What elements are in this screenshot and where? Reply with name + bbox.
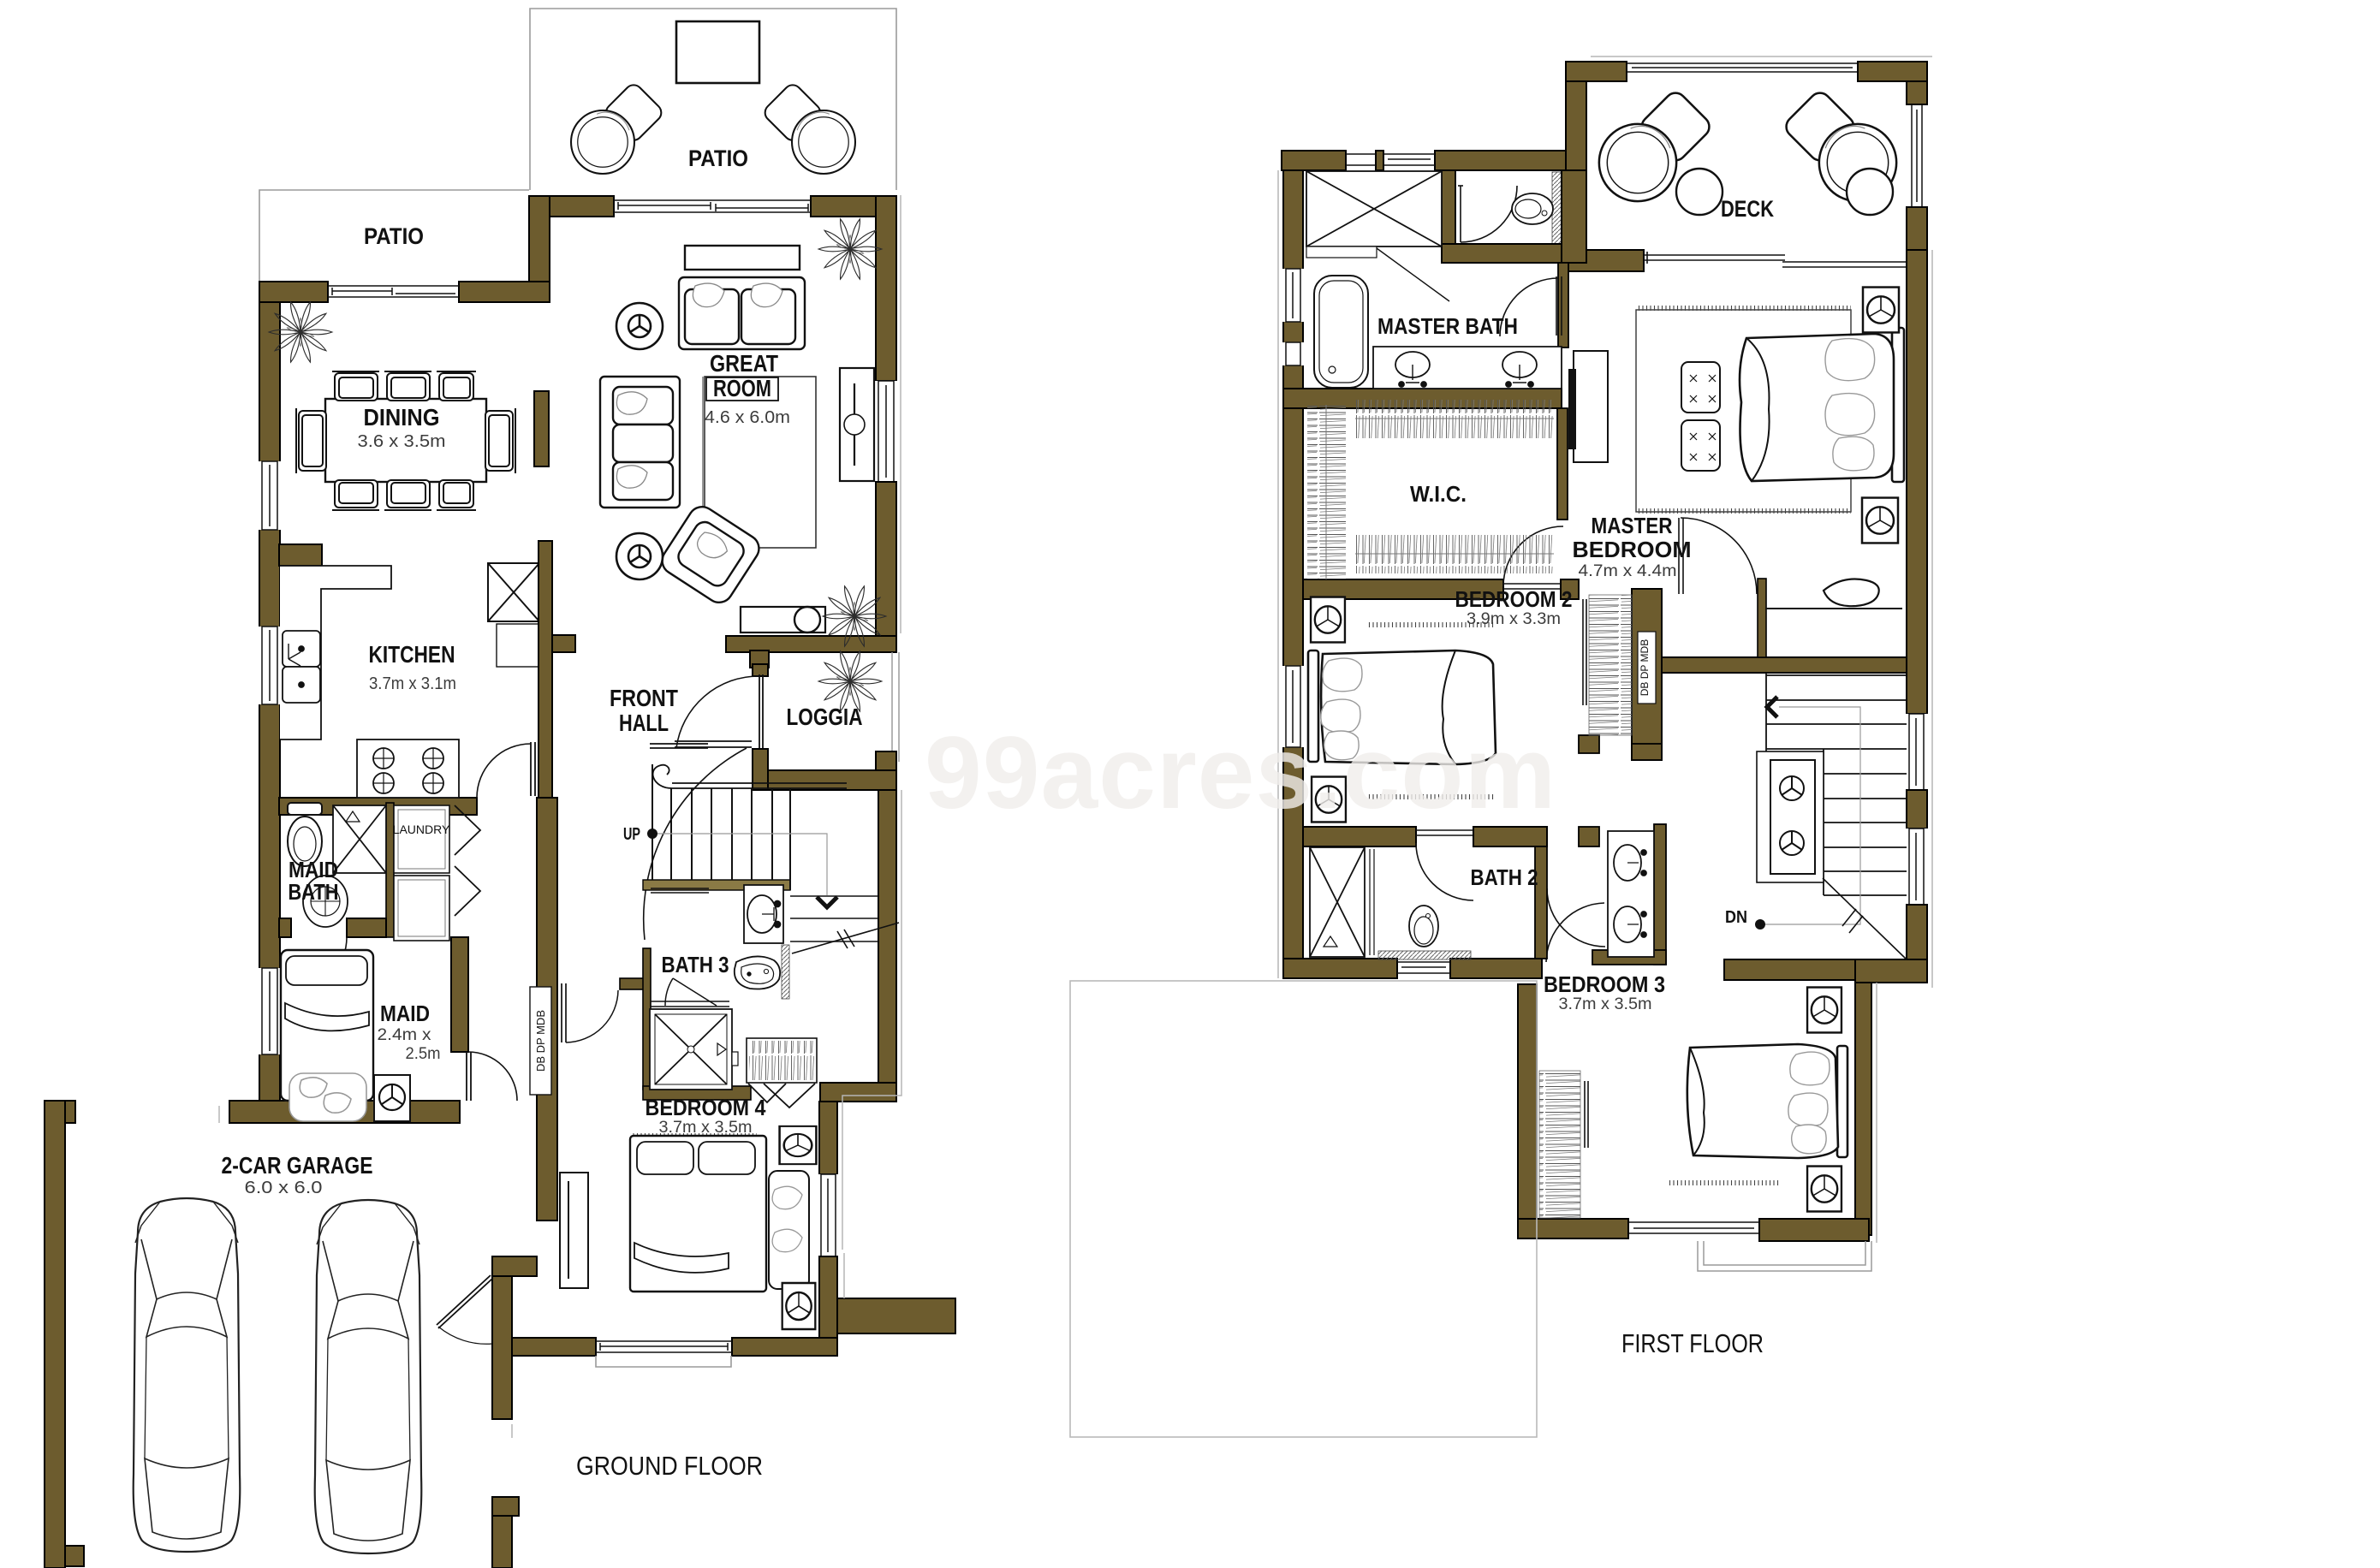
svg-text:ROOM: ROOM <box>713 375 771 401</box>
svg-text:4.7m x 4.4m: 4.7m x 4.4m <box>1579 562 1677 580</box>
svg-text:FIRST FLOOR: FIRST FLOOR <box>1621 1328 1764 1358</box>
svg-text:2-CAR GARAGE: 2-CAR GARAGE <box>222 1152 373 1179</box>
svg-text:DINING: DINING <box>364 404 440 431</box>
svg-text:99acres.com: 99acres.com <box>925 716 1556 830</box>
svg-text:PATIO: PATIO <box>364 223 424 249</box>
svg-text:GROUND FLOOR: GROUND FLOOR <box>576 1451 763 1481</box>
svg-text:2.5m: 2.5m <box>406 1045 441 1063</box>
svg-text:BATH 2: BATH 2 <box>1471 864 1538 890</box>
svg-text:3.6 x 3.5m: 3.6 x 3.5m <box>358 432 446 451</box>
svg-text:3.9m x 3.3m: 3.9m x 3.3m <box>1467 610 1561 628</box>
svg-text:3.7m x 3.1m: 3.7m x 3.1m <box>369 674 456 693</box>
svg-text:BEDROOM 2: BEDROOM 2 <box>1455 586 1573 612</box>
svg-text:BATH: BATH <box>289 879 339 905</box>
svg-text:DN: DN <box>1725 908 1747 927</box>
svg-text:GREAT: GREAT <box>710 350 778 377</box>
svg-text:2.4m x: 2.4m x <box>378 1026 432 1044</box>
svg-text:MASTER BATH: MASTER BATH <box>1377 313 1518 339</box>
svg-text:FRONT: FRONT <box>610 685 678 711</box>
svg-text:LOGGIA: LOGGIA <box>787 704 863 730</box>
svg-text:6.0 x 6.0: 6.0 x 6.0 <box>245 1179 323 1197</box>
svg-text:W.I.C.: W.I.C. <box>1410 481 1467 507</box>
svg-text:MASTER: MASTER <box>1592 513 1673 538</box>
svg-text:BEDROOM: BEDROOM <box>1573 537 1692 562</box>
svg-text:UP: UP <box>623 825 640 844</box>
svg-text:DB DP MDB: DB DP MDB <box>534 1010 547 1072</box>
svg-text:3.7m x 3.5m: 3.7m x 3.5m <box>1559 995 1652 1013</box>
svg-text:HALL: HALL <box>619 710 669 736</box>
svg-text:LAUNDRY: LAUNDRY <box>393 823 450 836</box>
svg-text:PATIO: PATIO <box>688 146 748 171</box>
svg-text:DECK: DECK <box>1721 196 1774 222</box>
svg-text:KITCHEN: KITCHEN <box>369 641 455 668</box>
svg-text:BEDROOM 3: BEDROOM 3 <box>1544 971 1665 997</box>
svg-text:MAID: MAID <box>380 1001 430 1026</box>
svg-text:3.7m x 3.5m: 3.7m x 3.5m <box>659 1119 753 1137</box>
svg-text:4.6 x 6.0m: 4.6 x 6.0m <box>705 408 790 427</box>
svg-text:BEDROOM 4: BEDROOM 4 <box>646 1095 766 1120</box>
svg-text:BATH 3: BATH 3 <box>662 952 729 977</box>
svg-text:DB DP MDB: DB DP MDB <box>1639 639 1651 696</box>
